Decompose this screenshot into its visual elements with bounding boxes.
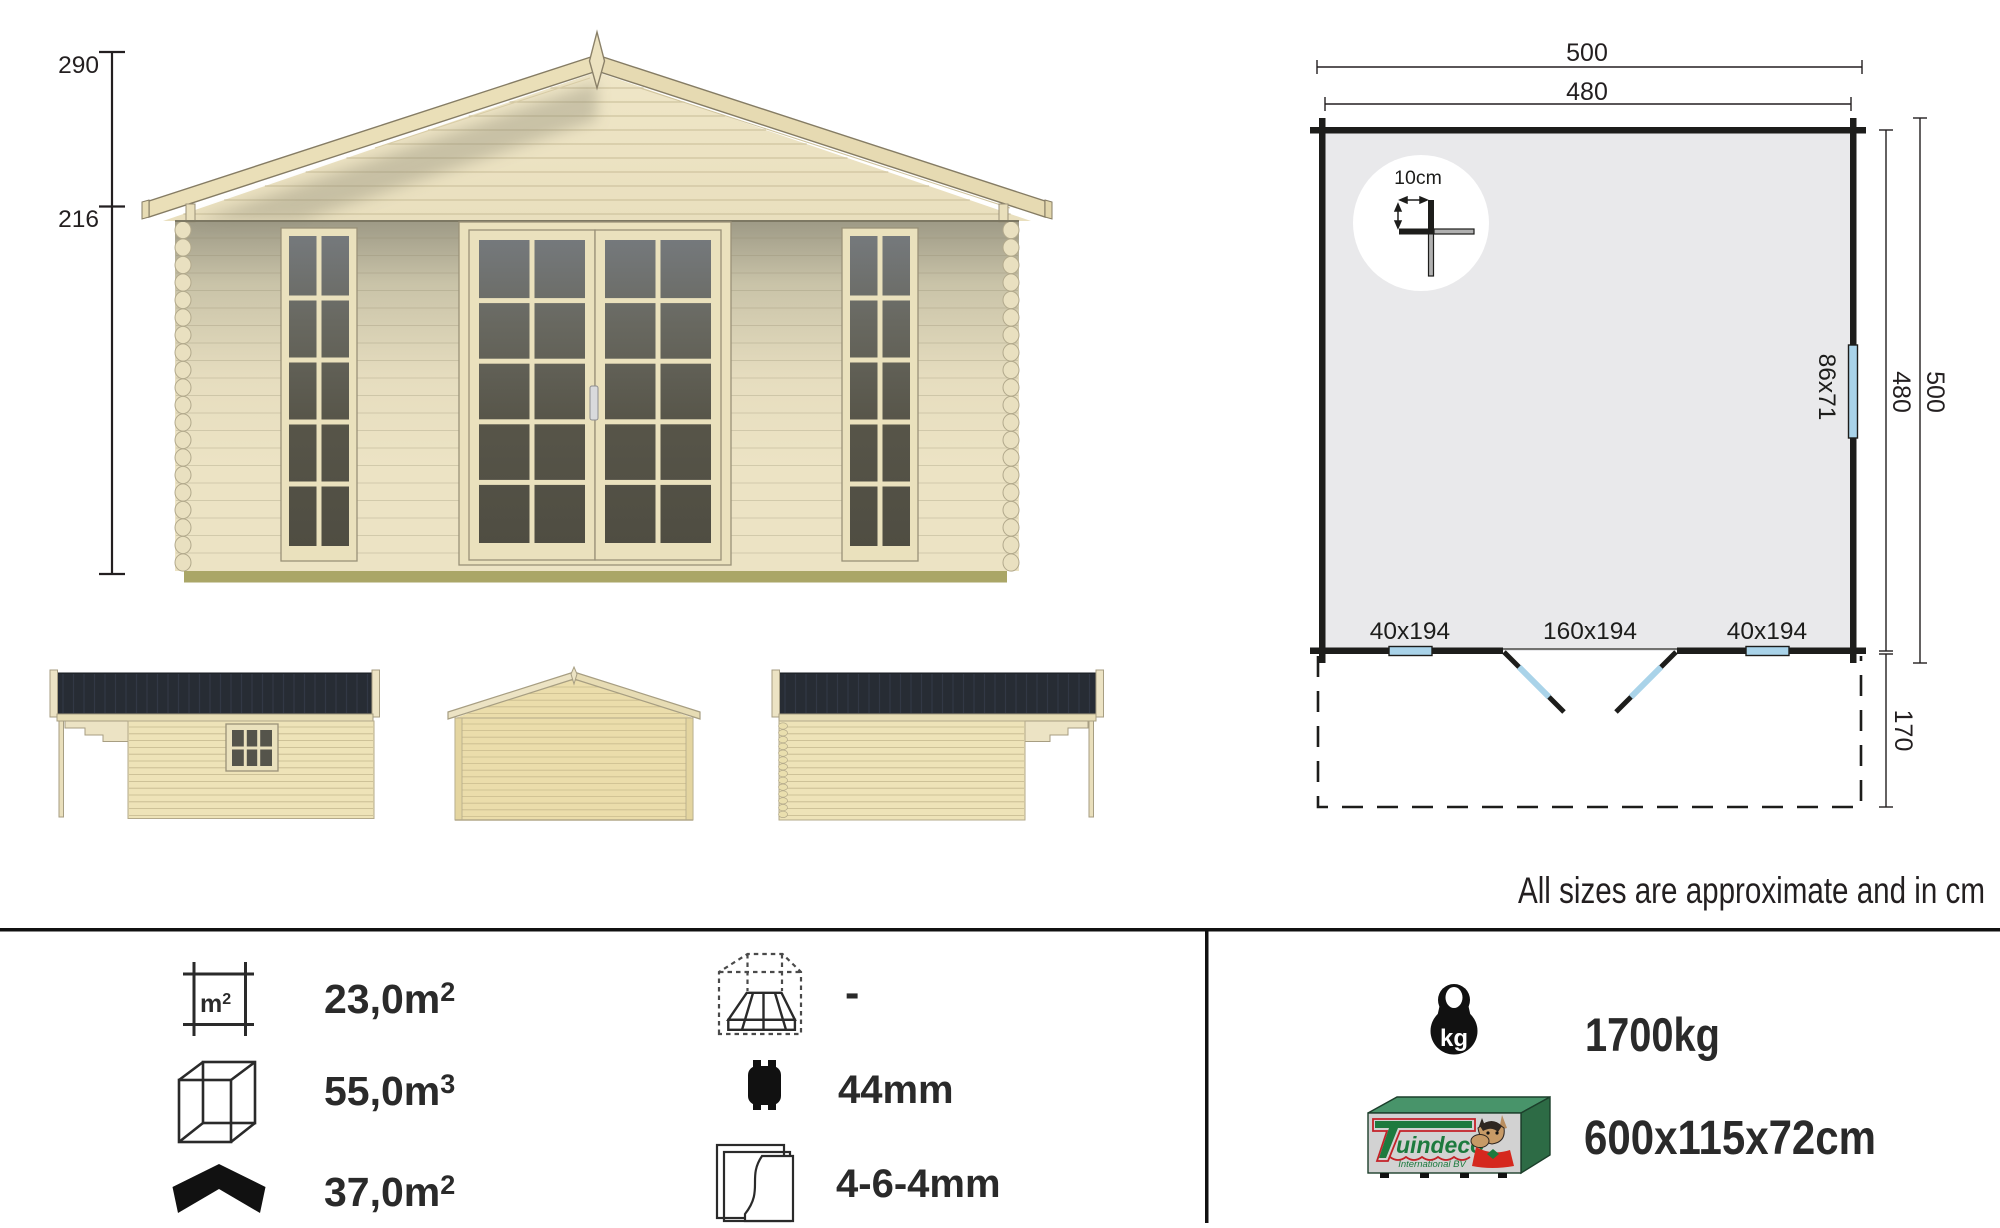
svg-text:1700kg: 1700kg [1585,1008,1720,1061]
svg-text:kg: kg [1440,1025,1468,1052]
svg-text:216: 216 [58,206,99,233]
svg-text:480: 480 [1887,371,1915,413]
svg-text:40x194: 40x194 [1370,618,1450,645]
svg-text:480: 480 [1566,78,1608,106]
svg-text:10cm: 10cm [1394,167,1442,189]
svg-text:170: 170 [1889,710,1917,752]
svg-text:44mm: 44mm [838,1068,954,1112]
svg-text:4-6-4mm: 4-6-4mm [836,1162,1001,1206]
svg-text:600x115x72cm: 600x115x72cm [1584,1112,1876,1165]
svg-text:500: 500 [1566,39,1608,67]
svg-text:International BV: International BV [1398,1159,1467,1170]
svg-text:All sizes are approximate and: All sizes are approximate and in cm [1518,870,1985,911]
svg-text:23,0m2: 23,0m2 [324,976,455,1022]
svg-text:86x71: 86x71 [1813,354,1840,421]
svg-text:40x194: 40x194 [1727,618,1807,645]
svg-text:290: 290 [58,52,99,79]
svg-text:55,0m3: 55,0m3 [324,1068,455,1114]
svg-text:160x194: 160x194 [1543,618,1637,645]
svg-text:500: 500 [1921,371,1949,413]
svg-text:-: - [845,969,859,1017]
svg-text:uindeco: uindeco [1396,1132,1484,1158]
svg-text:37,0m2: 37,0m2 [324,1169,455,1215]
